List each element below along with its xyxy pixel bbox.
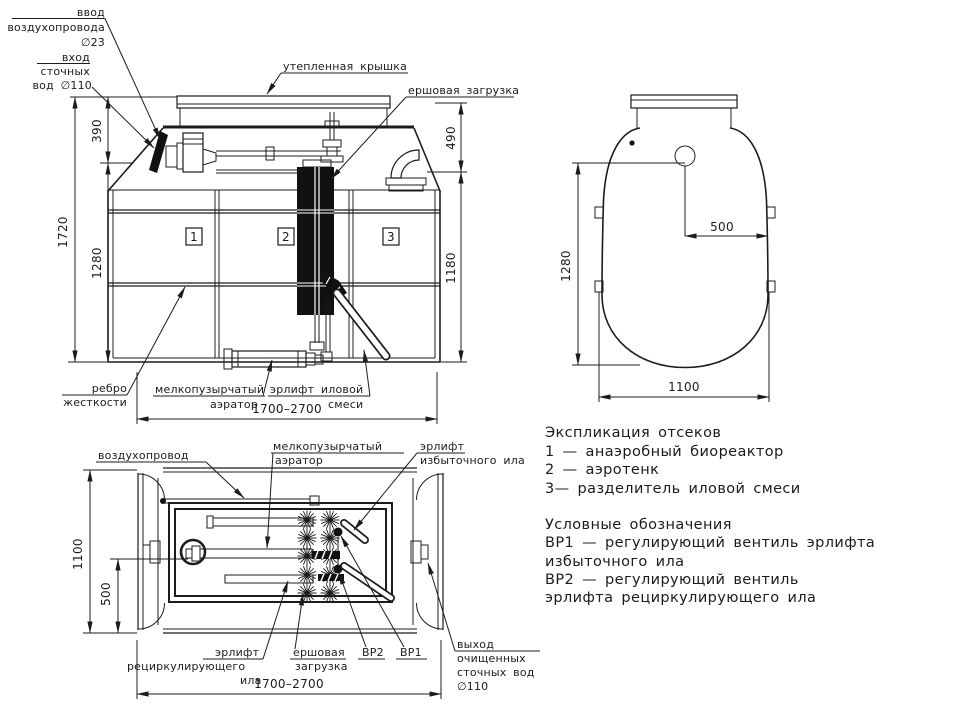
dim-lower-height: 1180 (444, 252, 458, 284)
legend-item-vr2-line2: эрлифта рециркулирующего ила (545, 590, 816, 606)
dim-total-height: 1720 (56, 216, 70, 248)
plan-aerator-label-line1: мелкопузырчатый (273, 440, 382, 453)
legend-item-vr1-line1: ВР1 — регулирующий вентиль эрлифта (545, 535, 875, 551)
plan-view-linework (138, 468, 443, 633)
port-circle-plan (181, 540, 205, 564)
brush-media-column (297, 160, 334, 350)
air-piping (216, 112, 343, 173)
recirc-airlift-label-line1: эрлифт (215, 646, 260, 659)
legend-block: Экспликация отсеков 1 — анаэробный биоре… (545, 425, 875, 606)
sewage-inlet-label-line1: вход (62, 51, 90, 64)
front-view-dimensions (68, 97, 467, 424)
insulated-cover (177, 96, 390, 108)
compartment-1-number: 1 (190, 230, 198, 244)
sewage-inlet-label-line3: вод ∅110 (33, 79, 93, 92)
compartment-3-number: 3 (387, 230, 395, 244)
dim-plan-offset: 500 (710, 220, 734, 234)
plan-view-texts: воздухопровод мелкопузырчатый аэратор эр… (98, 440, 535, 693)
outlet-label-line3: сточных вод (457, 666, 535, 679)
excess-airlift-label-line1: эрлифт (420, 440, 465, 453)
valve-vr1-label: ВР1 (400, 646, 422, 659)
brush-media-label: ершовая загрузка (408, 84, 519, 97)
technical-drawing-page: ввод воздухопровода ∅23 вход сточных вод… (0, 0, 953, 710)
outlet-label-line4: ∅110 (457, 680, 488, 693)
dim-plan-view-offset: 500 (99, 582, 113, 606)
valve-vr2-label: ВР2 (362, 646, 384, 659)
air-pipe-label: воздухопровод (98, 449, 189, 462)
recirc-airlift-label-line3: ила (240, 674, 262, 687)
sludge-airlift-label-line1: эрлифт иловой (270, 383, 363, 396)
sewage-inlet-label-line2: сточных (41, 65, 91, 78)
rib-label-line1: ребро (92, 382, 127, 395)
air-inlet-label-line3: ∅23 (81, 36, 105, 49)
outlet-elbow (386, 150, 426, 191)
outlet-label-line1: выход (457, 638, 494, 651)
airlift-pipes-plan (344, 523, 391, 598)
front-view-texts: ввод воздухопровода ∅23 вход сточных вод… (7, 6, 519, 416)
septic-tank-drawing: ввод воздухопровода ∅23 вход сточных вод… (0, 0, 953, 710)
excess-airlift-label-line2: избыточного ила (420, 454, 525, 467)
dim-plan-height: 1280 (559, 250, 573, 282)
legend-title-symbols: Условные обозначения (545, 517, 732, 533)
legend-title-compartments: Экспликация отсеков (545, 425, 721, 441)
legend-item-vr1-line2: избыточного ила (545, 554, 684, 570)
plan-brush-label-line1: ершовая (293, 646, 345, 659)
dim-plan-view-width: 1100 (71, 538, 85, 570)
dim-length-front: 1700–2700 (252, 402, 322, 416)
legend-item-3: 3— разделитель иловой смеси (545, 481, 801, 497)
aerator-label-line1: мелкопузырчатый (155, 383, 264, 396)
neck-flange (631, 95, 737, 108)
plan-aerator-label-line2: аэратор (275, 454, 323, 467)
legend-item-2: 2 — аэротенк (545, 462, 659, 478)
outlet-label-line2: очищенных (457, 652, 526, 665)
dim-outlet-depth: 490 (444, 126, 458, 150)
vent-dot (629, 140, 634, 145)
insulated-cover-label: утепленная крышка (283, 60, 407, 73)
legend-item-1: 1 — анаэробный биореактор (545, 444, 784, 460)
tank-plan-outline (602, 128, 768, 368)
legend-item-vr2-line1: ВР2 — регулирующий вентиль (545, 572, 799, 588)
compartment-2-number: 2 (282, 230, 290, 244)
plan-brush-label-line2: загрузка (295, 660, 348, 673)
valve-vr1 (334, 528, 343, 537)
dim-inlet-depth: 390 (90, 119, 104, 143)
top-view-linework (595, 95, 775, 368)
sludge-airlift-label-line2: смеси (328, 398, 363, 411)
dim-body-height: 1280 (90, 247, 104, 279)
dim-plan-view-length: 1700–2700 (254, 677, 324, 691)
recirc-airlift-label-line2: рециркулирующего (127, 660, 245, 673)
aerator-pipes-plan (186, 516, 313, 583)
air-inlet-label-line2: воздухопровода (7, 21, 105, 34)
dim-plan-width: 1100 (668, 380, 700, 394)
aerator-label-line2: аэратор (210, 398, 258, 411)
air-inlet-label-line1: ввод (77, 6, 105, 19)
rib-label-line2: жесткости (63, 396, 127, 409)
stiffening-ribs (108, 210, 440, 286)
